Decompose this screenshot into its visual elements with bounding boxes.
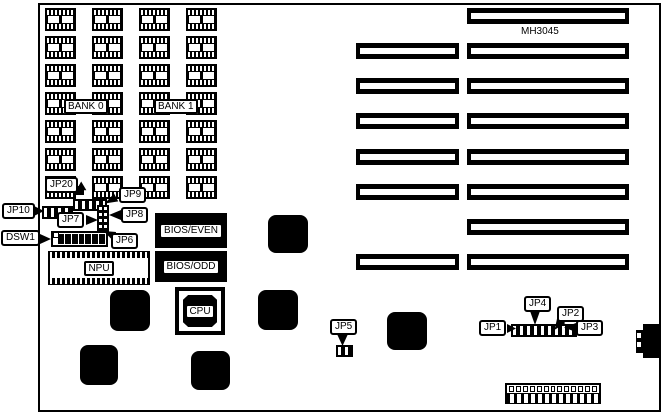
cpu-chip: CPU	[183, 295, 217, 327]
keyboard-connector-body	[643, 324, 661, 358]
bank1-label: BANK 1	[154, 96, 198, 114]
memory-chip	[139, 36, 170, 59]
slot-segment-long	[467, 219, 629, 235]
callout-jp6: JP6	[111, 233, 138, 249]
jp1-jp4-jumper-strip	[511, 324, 577, 337]
slot-segment-short	[356, 78, 459, 94]
callout-dsw1: DSW1	[1, 230, 40, 246]
motherboard-diagram: BANK 0 BANK 1 MH3045 NPU BIOS/EVEN BIOS/…	[0, 0, 665, 416]
slot-segment-long	[467, 43, 629, 59]
callout-jp10: JP10	[2, 203, 35, 219]
qfp-chip	[80, 345, 118, 385]
memory-chip	[186, 120, 217, 143]
power-pin	[516, 386, 521, 392]
jp5-jumper	[336, 345, 353, 357]
qfp-chip	[258, 290, 298, 330]
model-number: MH3045	[521, 26, 559, 37]
qfp-chip	[387, 312, 427, 350]
bank0-label: BANK 0	[64, 96, 108, 114]
cpu-socket: CPU	[175, 287, 225, 335]
memory-chip	[92, 120, 123, 143]
power-pin	[557, 386, 562, 392]
bios-odd-label: BIOS/ODD	[163, 260, 220, 274]
npu-label: NPU	[84, 261, 113, 276]
memory-chip	[139, 8, 170, 31]
jp6-jp7-jp8-jumper-block	[97, 205, 109, 233]
callout-jp4: JP4	[524, 296, 551, 312]
power-pin	[585, 386, 590, 392]
slot-segment-long	[467, 184, 629, 200]
bios-odd-chip: BIOS/ODD	[155, 251, 227, 282]
dip-switch-position	[72, 234, 78, 244]
keyboard-connector-notch	[637, 333, 641, 338]
slot-segment-short	[356, 254, 459, 270]
slot-segment-short	[356, 184, 459, 200]
power-connector-teeth	[507, 393, 599, 403]
memory-chip	[186, 36, 217, 59]
dip-switch-position	[85, 234, 91, 244]
bios-even-chip: BIOS/EVEN	[155, 213, 227, 248]
power-pin	[571, 386, 576, 392]
power-pin	[537, 386, 542, 392]
bank1-label-text: BANK 1	[154, 99, 198, 114]
slot-segment-long	[467, 8, 629, 24]
memory-chip	[186, 64, 217, 87]
bank0-label-text: BANK 0	[64, 99, 108, 114]
memory-chip	[186, 176, 217, 199]
dip-switch-position	[79, 234, 85, 244]
qfp-chip	[110, 290, 150, 331]
callout-jp7: JP7	[57, 212, 84, 228]
dip-switch-position	[92, 234, 98, 244]
power-pin	[523, 386, 528, 392]
dip-switch-open-position	[53, 232, 59, 238]
memory-chip	[92, 64, 123, 87]
memory-chip	[139, 120, 170, 143]
power-pin	[509, 386, 514, 392]
bios-even-label: BIOS/EVEN	[160, 224, 222, 238]
memory-chip	[92, 148, 123, 171]
power-pin	[530, 386, 535, 392]
memory-chip	[45, 36, 76, 59]
callout-jp9: JP9	[119, 187, 146, 203]
power-pin	[564, 386, 569, 392]
memory-chip	[45, 8, 76, 31]
memory-chip	[186, 148, 217, 171]
dip-switch-dsw1	[51, 231, 108, 247]
slot-segment-long	[467, 78, 629, 94]
power-connector-pins	[507, 385, 599, 393]
power-connector	[505, 383, 601, 404]
qfp-chip	[191, 351, 230, 390]
memory-chip	[139, 148, 170, 171]
callout-jp5: JP5	[330, 319, 357, 335]
cpu-label: CPU	[186, 305, 213, 318]
npu-socket: NPU	[48, 251, 150, 285]
slot-segment-short	[356, 113, 459, 129]
power-pin	[551, 386, 556, 392]
memory-chip	[92, 36, 123, 59]
power-pin	[544, 386, 549, 392]
npu-socket-body: NPU	[50, 258, 148, 278]
callout-jp3: JP3	[576, 320, 603, 336]
memory-chip	[45, 148, 76, 171]
slot-segment-long	[467, 113, 629, 129]
memory-chip	[92, 8, 123, 31]
power-pin	[592, 386, 597, 392]
slot-segment-long	[467, 254, 629, 270]
power-pin	[578, 386, 583, 392]
memory-chip	[45, 64, 76, 87]
slot-segment-short	[356, 43, 459, 59]
memory-chip	[45, 120, 76, 143]
keyboard-connector-notch	[637, 342, 641, 347]
npu-pins-bottom	[50, 278, 148, 284]
slot-segment-long	[467, 149, 629, 165]
memory-chip	[139, 64, 170, 87]
callout-jp1: JP1	[479, 320, 506, 336]
slot-segment-short	[356, 149, 459, 165]
qfp-chip	[268, 215, 308, 253]
callout-jp8: JP8	[121, 207, 148, 223]
memory-chip	[186, 8, 217, 31]
callout-jp20: JP20	[45, 177, 78, 193]
dip-switch-position	[99, 234, 105, 244]
dip-switch-position	[65, 234, 71, 244]
